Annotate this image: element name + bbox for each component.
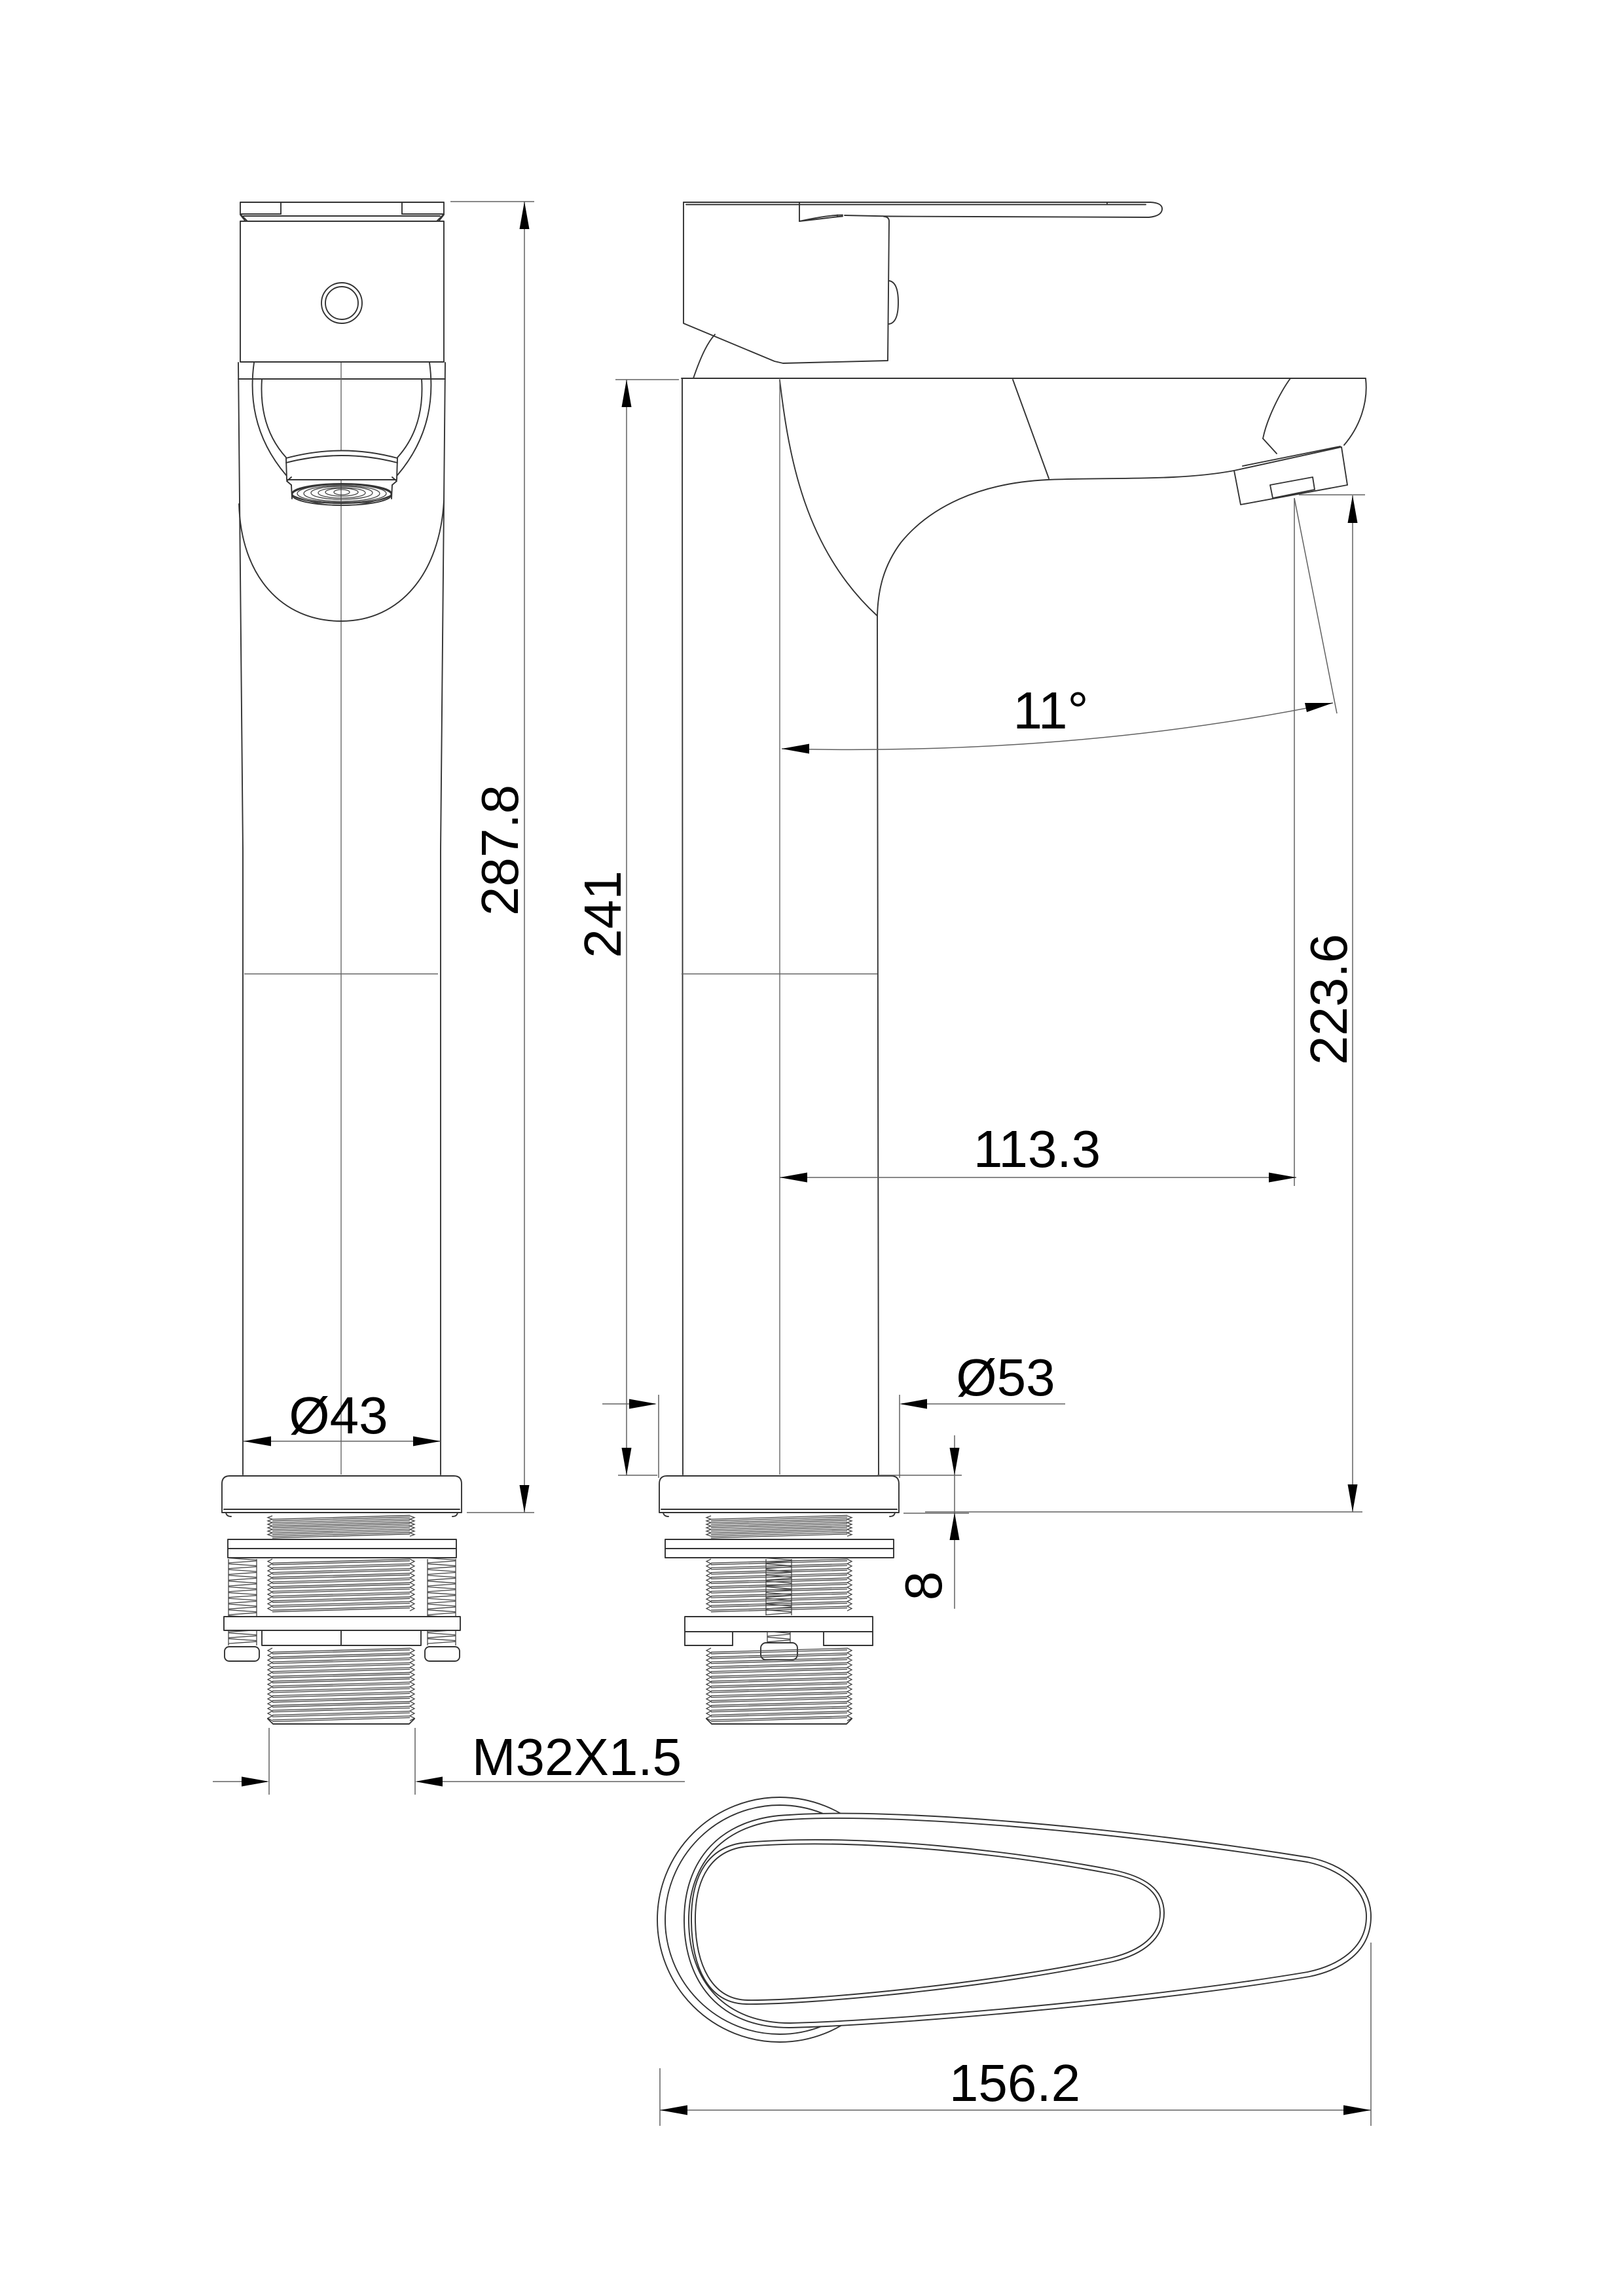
svg-text:223.6: 223.6 [1300, 934, 1358, 1065]
svg-text:Ø53: Ø53 [956, 1348, 1055, 1407]
svg-text:8: 8 [894, 1571, 953, 1601]
svg-text:241: 241 [574, 870, 632, 958]
svg-text:113.3: 113.3 [974, 1120, 1101, 1178]
svg-text:M32X1.5: M32X1.5 [472, 1728, 682, 1786]
svg-text:Ø43: Ø43 [289, 1386, 388, 1444]
svg-text:11°: 11° [1013, 681, 1088, 740]
svg-text:287.8: 287.8 [471, 785, 529, 916]
svg-text:156.2: 156.2 [949, 2054, 1080, 2112]
